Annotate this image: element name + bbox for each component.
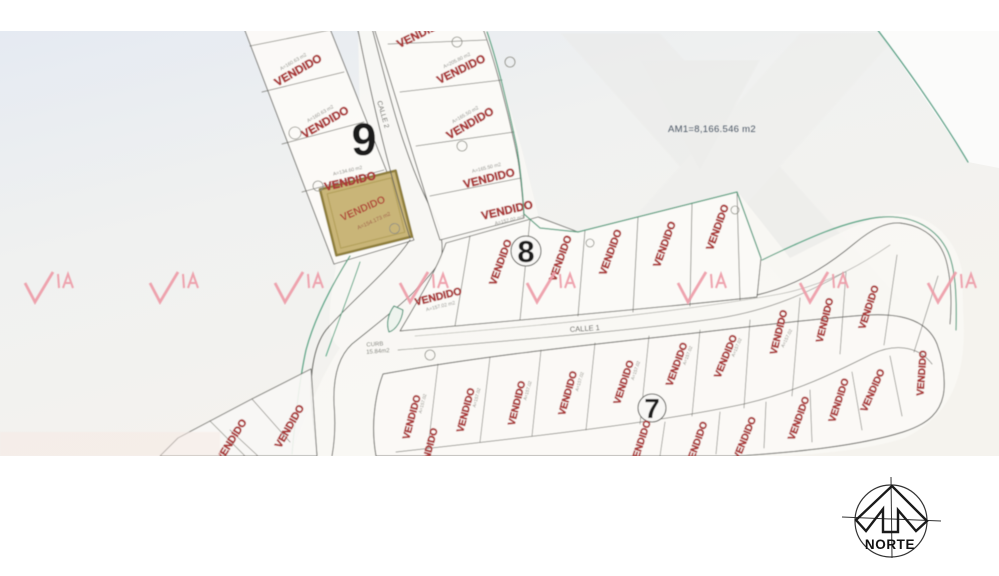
svg-text:7: 7 bbox=[644, 393, 660, 424]
svg-text:9: 9 bbox=[351, 114, 376, 165]
svg-text:NORTE: NORTE bbox=[865, 537, 915, 552]
svg-text:CURB: CURB bbox=[366, 341, 383, 348]
svg-text:AM1=8,166.546 m2: AM1=8,166.546 m2 bbox=[668, 124, 756, 135]
svg-text:8: 8 bbox=[517, 234, 534, 269]
